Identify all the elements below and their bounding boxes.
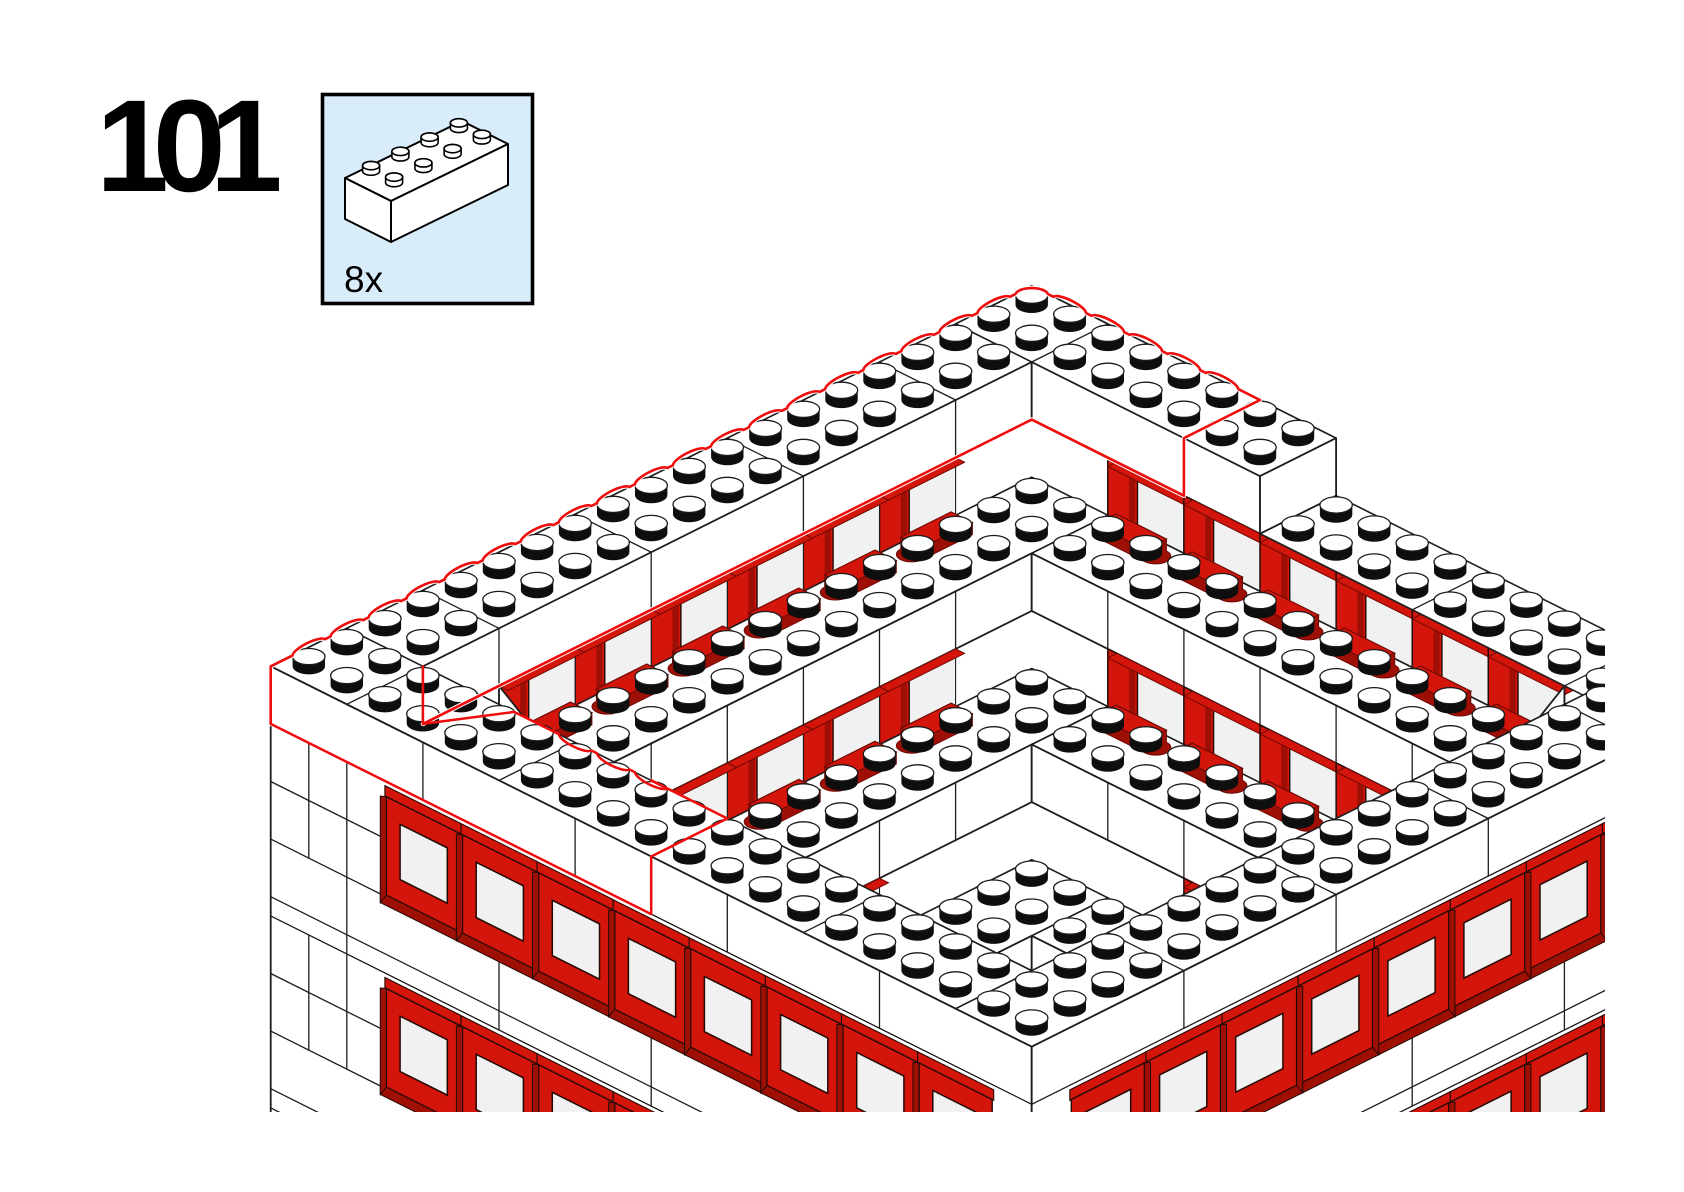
svg-text:8x: 8x bbox=[344, 259, 384, 300]
svg-text:101: 101 bbox=[96, 72, 280, 219]
